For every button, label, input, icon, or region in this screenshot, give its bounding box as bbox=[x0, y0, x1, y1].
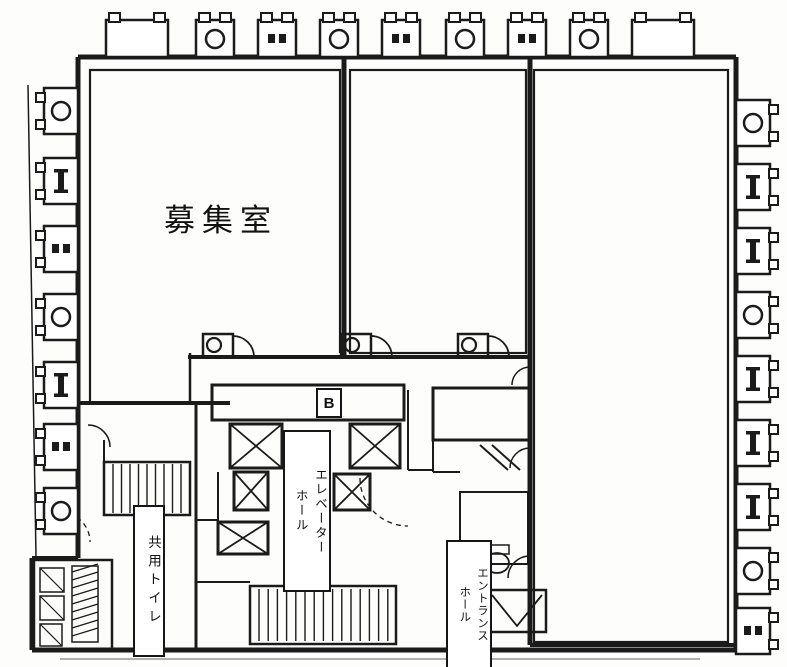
bar-icon bbox=[750, 241, 756, 261]
room3-outline bbox=[534, 70, 728, 642]
equipment-unit-icon bbox=[736, 548, 778, 594]
toilet-stalls bbox=[34, 560, 112, 650]
door-swing-icon bbox=[508, 556, 530, 578]
equipment-unit-icon bbox=[36, 488, 78, 534]
equipment-unit-icon bbox=[736, 100, 778, 146]
entrance-hall-label-line2: ホール bbox=[454, 542, 472, 667]
equipment-unit-icon bbox=[382, 13, 420, 57]
vent-icon bbox=[63, 442, 70, 451]
equipment-unit-icon bbox=[736, 228, 778, 274]
equipment-unit-icon bbox=[736, 484, 778, 530]
duct-space bbox=[212, 385, 404, 420]
vent-icon bbox=[755, 626, 762, 635]
vent-icon bbox=[392, 34, 399, 43]
entrance-hall-label: エントランス ホール bbox=[446, 540, 492, 667]
service-bay bbox=[488, 590, 546, 632]
door-swing-icon bbox=[88, 425, 110, 447]
shared-toilet-label: 共用トイレ bbox=[133, 505, 165, 657]
equipment-unit-icon bbox=[258, 13, 296, 57]
equipment-unit-icon bbox=[446, 13, 484, 57]
floor-plan-drawing bbox=[0, 0, 787, 667]
room2-outline bbox=[350, 70, 526, 353]
staircase-lower bbox=[250, 586, 396, 644]
vent-icon bbox=[403, 34, 410, 43]
equipment-unit-icon bbox=[736, 164, 778, 210]
vent-icon bbox=[63, 244, 70, 253]
vacant-room-label: 募集室 bbox=[164, 195, 278, 240]
bar-icon bbox=[750, 497, 756, 517]
machine-room bbox=[433, 388, 530, 440]
equipment-unit-icon bbox=[36, 88, 78, 134]
floor-plan: 募集室 B 共用トイレ エレベーター ホール エントランス ホール bbox=[0, 0, 787, 667]
equipment-unit-icon bbox=[36, 158, 78, 204]
vent-icon bbox=[52, 442, 59, 451]
bar-icon bbox=[750, 369, 756, 389]
door-swing-icon bbox=[512, 367, 530, 385]
elevator-hall-label: エレベーター ホール bbox=[283, 430, 331, 592]
equipment-unit-icon bbox=[570, 13, 608, 57]
equipment-unit-icon bbox=[106, 13, 168, 57]
door-swing-icon bbox=[203, 334, 254, 357]
elevator-shaft-icon bbox=[234, 472, 268, 510]
bar-icon bbox=[750, 433, 756, 453]
site-boundary-line bbox=[28, 85, 36, 556]
equipment-unit-icon bbox=[508, 13, 546, 57]
shared-toilet-label-text: 共用トイレ bbox=[142, 507, 163, 655]
entrance-hall-label-line1: エントランス bbox=[472, 542, 490, 667]
equipment-unit-icon bbox=[36, 294, 78, 340]
equipment-unit-icon bbox=[36, 226, 78, 272]
door-swing-dashed-icon bbox=[360, 478, 408, 526]
bar-icon bbox=[58, 375, 64, 395]
vent-icon bbox=[268, 34, 275, 43]
equipment-unit-icon bbox=[196, 13, 234, 57]
vent-icon bbox=[518, 34, 525, 43]
elevator-shaft-icon bbox=[218, 522, 268, 554]
equipment-unit-icon bbox=[36, 362, 78, 408]
vent-icon bbox=[529, 34, 536, 43]
equipment-unit-icon bbox=[736, 420, 778, 466]
elevator-shaft-icon bbox=[334, 474, 370, 510]
elevator-hall-label-line2: ホール bbox=[290, 432, 309, 590]
equipment-unit-icon bbox=[736, 292, 778, 338]
bar-icon bbox=[58, 171, 64, 191]
elevator-shaft-icon bbox=[230, 424, 282, 468]
staircase-upper bbox=[104, 440, 190, 515]
elevator-hall-label-line1: エレベーター bbox=[310, 432, 329, 590]
equipment-unit-icon bbox=[736, 356, 778, 402]
b-marker-label: B bbox=[316, 388, 342, 418]
equipment-unit-icon bbox=[320, 13, 358, 57]
equipment-unit-icon bbox=[736, 608, 778, 654]
vent-icon bbox=[279, 34, 286, 43]
vent-icon bbox=[52, 244, 59, 253]
door-marks bbox=[480, 445, 520, 470]
bar-icon bbox=[750, 177, 756, 197]
elevator-shaft-icon bbox=[350, 424, 400, 468]
equipment-unit-icon bbox=[36, 424, 78, 470]
vent-icon bbox=[744, 626, 751, 635]
equipment-unit-icon bbox=[632, 13, 694, 57]
